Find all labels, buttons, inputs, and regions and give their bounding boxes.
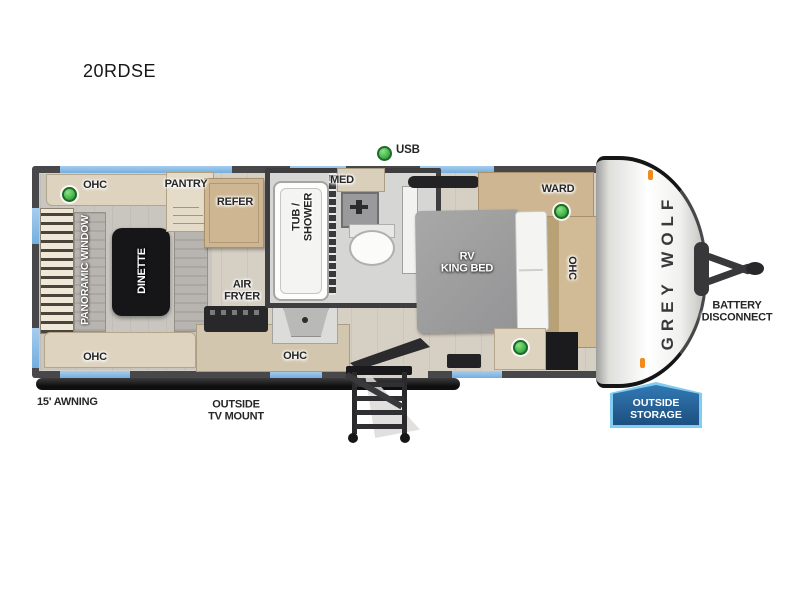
window-bottom-bedroom <box>452 371 502 378</box>
steps-rung <box>355 424 404 429</box>
usb-led-dot <box>377 146 392 161</box>
steps-wheel-left <box>348 433 358 443</box>
window-rear-lower <box>32 328 39 368</box>
ohc-top-left-label: OHC <box>83 179 107 191</box>
battery-disconnect-label: BATTERY DISCONNECT <box>702 300 773 325</box>
led-dot-dinette <box>62 187 77 202</box>
refer-label: REFER <box>217 196 253 208</box>
marker-light-bottom <box>640 358 645 368</box>
awning-label: 15' AWNING <box>37 396 98 408</box>
bedroom-dark-cabinet <box>546 332 578 370</box>
window-rear-upper <box>32 208 39 244</box>
steps-rung <box>355 410 404 415</box>
bathroom-divider-wall <box>329 173 336 295</box>
marker-light-top <box>648 170 653 180</box>
bedroom-tv <box>408 176 480 188</box>
tub-shower-label: TUB / SHOWER <box>291 193 316 241</box>
model-title: 20RDSE <box>83 61 156 82</box>
usb-label: USB <box>396 144 420 157</box>
ohc-bedroom-label: OHC <box>566 256 578 280</box>
air-fryer-range <box>204 306 268 332</box>
door-side-step <box>447 354 481 368</box>
bathroom-sink <box>341 192 379 228</box>
refrigerator <box>204 178 264 248</box>
hitch-assembly <box>692 240 766 298</box>
ohc-kitchen-label: OHC <box>283 350 307 362</box>
bed-pillows <box>515 211 549 332</box>
toilet <box>349 230 395 266</box>
led-dot-nightstand <box>513 340 528 355</box>
faucet-icon <box>302 317 308 323</box>
ohc-cabinet-bottom-left <box>44 332 196 368</box>
trailer-body: OHC PANORAMIC WINDOW DINETTE OHC PANTRY … <box>32 166 612 378</box>
tongue-jack <box>694 242 709 296</box>
brand-logo: GREY WOLF <box>658 194 678 351</box>
tv-mount-label: OUTSIDE TV MOUNT <box>208 399 264 424</box>
led-dot-ward <box>554 204 569 219</box>
entry-steps <box>346 366 422 444</box>
rv-king-bed-label: RV KING BED <box>441 251 493 276</box>
ward-label: WARD <box>542 183 575 195</box>
hitch-coupler <box>746 262 764 275</box>
air-fryer-label: AIR FRYER <box>224 279 260 304</box>
floorplan-canvas: 20RDSE USB <box>0 0 800 600</box>
outside-storage-badge: OUTSIDE STORAGE <box>610 382 702 428</box>
front-cap: GREY WOLF <box>596 156 707 388</box>
panoramic-window-label: PANORAMIC WINDOW <box>80 215 92 325</box>
window-bottom-kitchen <box>270 371 322 378</box>
pantry-label: PANTRY <box>165 178 208 190</box>
med-label: MED <box>330 174 354 186</box>
ohc-bottom-left-label: OHC <box>83 351 107 363</box>
dinette-label: DINETTE <box>136 248 148 294</box>
panoramic-window-blinds <box>40 208 74 334</box>
window-bottom-left <box>60 371 130 378</box>
steps-wheel-right <box>400 433 410 443</box>
